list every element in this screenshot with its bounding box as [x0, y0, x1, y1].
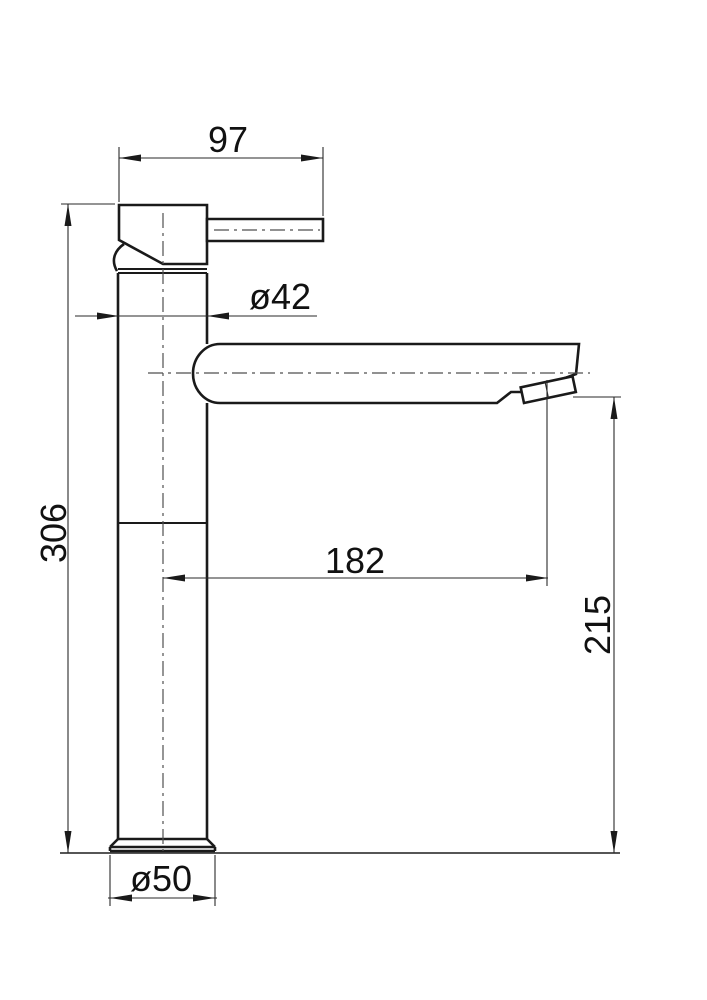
arrowhead	[193, 895, 215, 902]
dimension-spout-reach: 182	[163, 380, 548, 586]
handle-dome-curve	[114, 244, 124, 271]
arrowhead	[119, 155, 141, 162]
arrowhead	[110, 895, 132, 902]
arrowhead	[611, 831, 618, 853]
dimension-total-height: 306	[33, 204, 115, 853]
arrowhead	[207, 313, 229, 320]
arrowhead	[65, 831, 72, 853]
faucet-outline	[60, 205, 620, 853]
dimension-label: 306	[33, 503, 74, 563]
arrowhead	[526, 575, 548, 582]
dimension-label: 97	[208, 119, 248, 160]
arrowhead	[65, 204, 72, 226]
dimension-outlet-height: 215	[573, 397, 621, 853]
dimension-label: ø42	[249, 276, 311, 317]
centerlines	[148, 213, 590, 851]
dimension-label: 182	[325, 540, 385, 581]
dimension-base-diameter: ø50	[108, 855, 217, 906]
dimension-label: ø50	[130, 858, 192, 899]
arrowhead	[301, 155, 323, 162]
drawing-canvas: 97 ø42 306 182	[0, 0, 707, 1000]
faucet-technical-drawing: 97 ø42 306 182	[0, 0, 707, 1000]
dimension-handle-length: 97	[119, 119, 323, 216]
arrowhead	[97, 313, 119, 320]
dimension-label: 215	[577, 595, 618, 655]
arrowhead	[611, 397, 618, 419]
